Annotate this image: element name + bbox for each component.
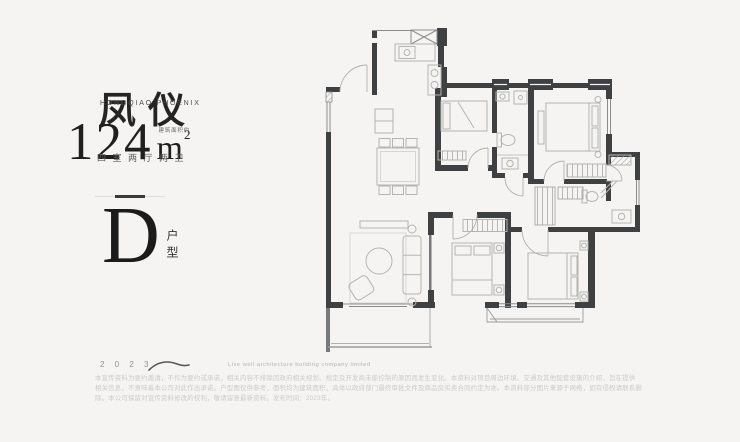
- bathroom-door: [505, 178, 523, 196]
- bathroom-fixtures: [496, 91, 528, 169]
- entry-shaft: [326, 92, 332, 102]
- flue-shaft: [372, 30, 437, 44]
- living-room-set: [347, 221, 421, 306]
- disclaimer-line: 除。本公司保留对宣传资料修改的权利，敬请留意最新资料。发布时间：2023年。: [95, 394, 683, 404]
- area-superscript: 2: [184, 127, 191, 142]
- swoosh-icon: [147, 359, 191, 373]
- toilet-icon: [501, 135, 515, 146]
- dresser-icon: [438, 151, 466, 160]
- balcony: [328, 308, 432, 347]
- small-bedroom-set: [438, 101, 487, 160]
- sink-icon: [612, 210, 631, 223]
- wardrobe-icon: [567, 164, 606, 177]
- bed-icon: [452, 243, 492, 295]
- bedroom2-set: [452, 220, 507, 296]
- closet-icon: [535, 187, 555, 225]
- coffee-table-icon: [366, 248, 392, 274]
- floor-plan: [295, 15, 685, 360]
- master-bath-door: [606, 165, 622, 181]
- footer-year: 2 0 2 3: [100, 360, 152, 369]
- dining-set: [377, 139, 419, 195]
- sink-icon: [496, 92, 509, 101]
- bench-icon: [538, 111, 544, 144]
- washer-icon: [609, 155, 631, 165]
- unit-type-label: 户型: [164, 229, 181, 263]
- corridor-closets: [535, 187, 583, 225]
- small-bedroom-door: [468, 148, 488, 168]
- master-bedroom-door: [544, 161, 564, 181]
- closet-icon: [558, 187, 583, 199]
- kitchen-fixtures: [375, 44, 441, 133]
- rug: [350, 233, 406, 303]
- shower-icon: [514, 91, 527, 104]
- unit-type-letter: D: [102, 196, 160, 276]
- disclaimer-line: 相关信息，不意味着本公司对此作出承诺。户型图仅供参考，面积均为建筑面积，具体以政…: [95, 384, 683, 394]
- basin-icon: [502, 158, 518, 169]
- entry-door: [340, 65, 367, 92]
- bay-window: [487, 308, 583, 322]
- tv-console: [360, 221, 408, 228]
- armchair-icon: [347, 274, 375, 301]
- bed-icon: [441, 101, 487, 131]
- toilet-icon: [586, 192, 598, 202]
- footer-tagline: Live well architecture building company …: [228, 362, 371, 368]
- bedroom3-set: [528, 241, 588, 301]
- wardrobe-icon: [463, 220, 507, 232]
- bedroom3-door: [522, 230, 548, 256]
- layout-description: 四室两厅两卫: [97, 151, 190, 164]
- master-bedroom-set: [538, 97, 606, 178]
- disclaimer-line: 本宣传资料为要约邀请，不作为要约或承诺，相关内容不排除因政府相关规划、规定及开发…: [95, 374, 683, 384]
- project-subtitle: HONGQIAO PHOENIX: [100, 100, 201, 107]
- real-estate-poster: 凤仪 HONGQIAO PHOENIX 124建筑面积约m2 四室两厅两卫 D …: [0, 0, 740, 442]
- disclaimer-block: 本宣传资料为要约邀请，不作为要约或承诺，相关内容不排除因政府相关规划、规定及开发…: [95, 374, 683, 404]
